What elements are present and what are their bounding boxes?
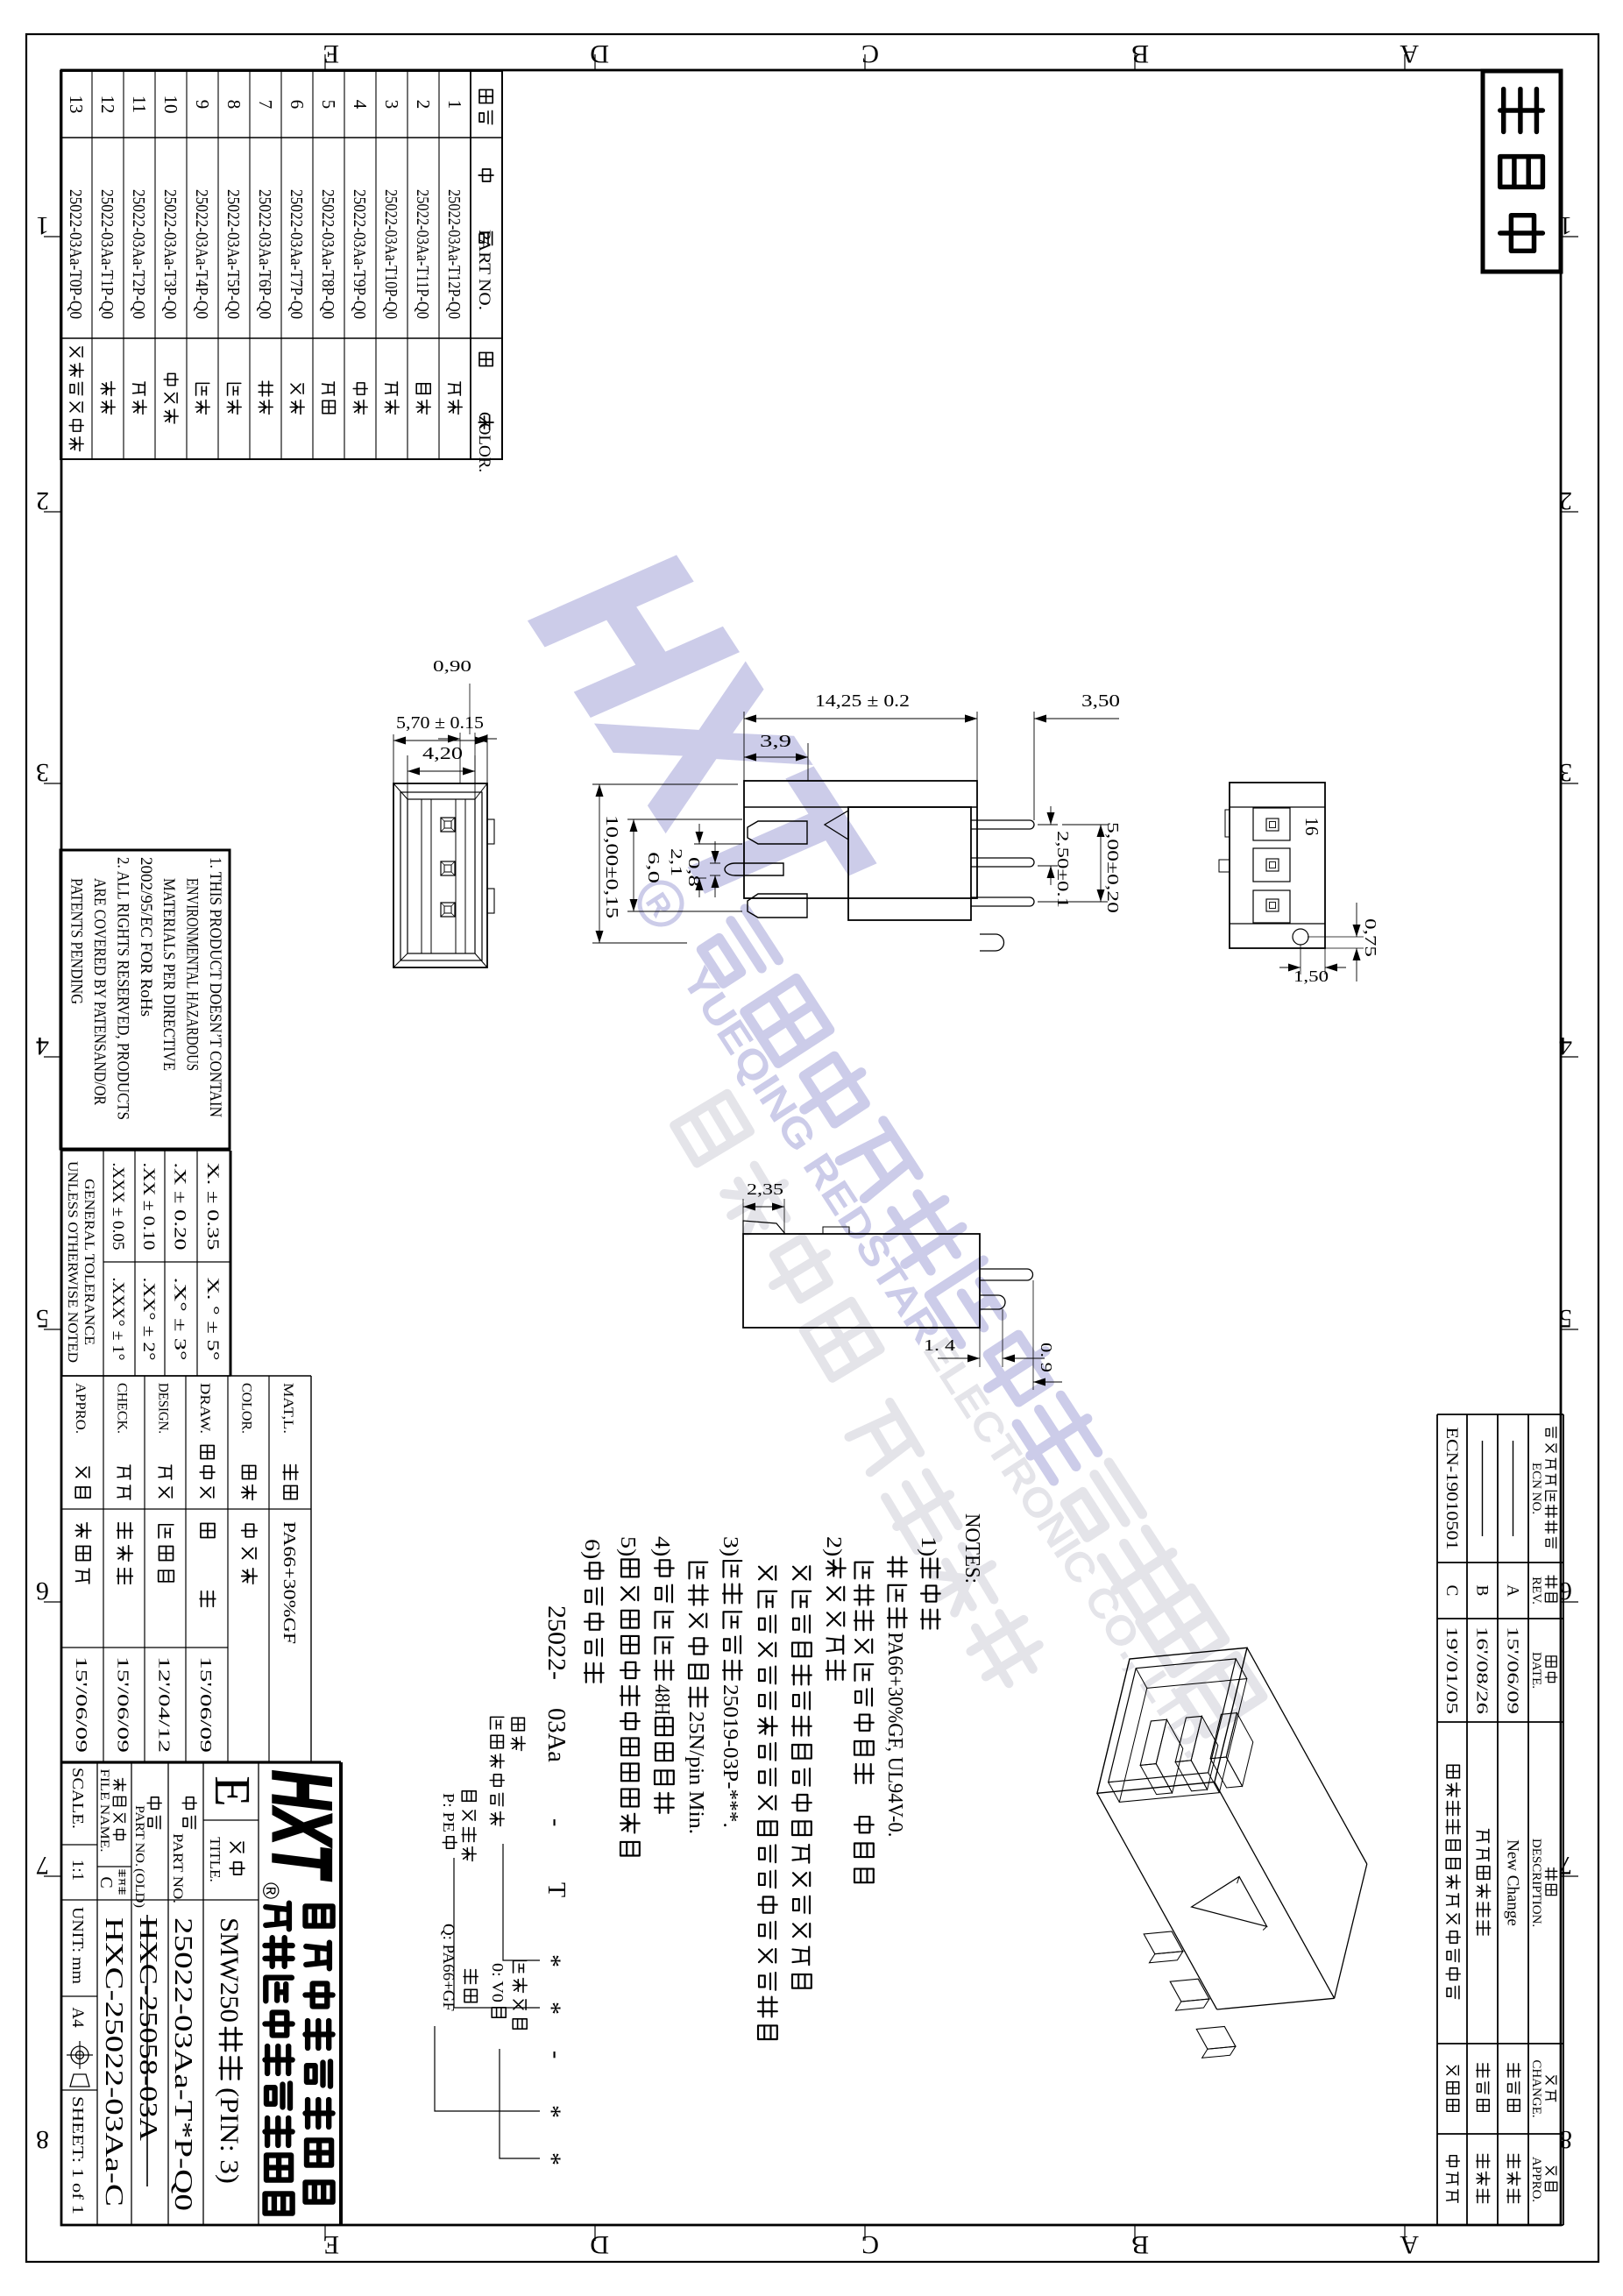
svg-text:NOTES:: NOTES: [960, 1513, 983, 1584]
svg-text:0,90: 0,90 [433, 657, 471, 675]
svg-text:1,50: 1,50 [1293, 967, 1329, 985]
svg-text:.X° ± 3°: .X° ± 3° [171, 1278, 189, 1361]
svg-text:25022-03Aa-T10P-Q0: 25022-03Aa-T10P-Q0 [381, 189, 400, 319]
svg-text:1. THIS PRODUCT DOESN’T CONTAI: 1. THIS PRODUCT DOESN’T CONTAIN [206, 857, 224, 1117]
svg-text:1:1: 1:1 [68, 1860, 87, 1881]
svg-text:ENVIRONMENTAL HAZARDOUS: ENVIRONMENTAL HAZARDOUS [183, 878, 202, 1071]
svg-text:PART NO.: PART NO. [170, 1833, 185, 1903]
svg-text:HXC-25022-03Aa-C: HXC-25022-03Aa-C [100, 1917, 127, 2207]
svg-text:8: 8 [36, 2125, 49, 2154]
svg-text:D: D [590, 39, 609, 68]
svg-text:X. ° ± 5°: X. ° ± 5° [203, 1278, 222, 1361]
svg-text:2: 2 [36, 486, 49, 515]
svg-text:MATERIALS PER DIRECTIVE: MATERIALS PER DIRECTIVE [159, 878, 178, 1071]
svg-text:12: 12 [97, 96, 118, 114]
svg-text:DESCRIPTION.: DESCRIPTION. [1529, 1839, 1543, 1927]
svg-text:19'/01/05: 19'/01/05 [1443, 1626, 1461, 1714]
svg-text:2): 2) [822, 1536, 845, 1556]
svg-text:25022-03Aa-T12P-Q0: 25022-03Aa-T12P-Q0 [444, 189, 464, 319]
svg-text:REV.: REV. [1529, 1577, 1543, 1605]
svg-text:3: 3 [381, 100, 402, 110]
svg-text:5: 5 [1559, 1304, 1572, 1333]
svg-text:11: 11 [129, 96, 150, 113]
svg-text:*: * [537, 2152, 566, 2165]
svg-text:13: 13 [66, 96, 87, 114]
svg-text:UNLESS OTHERWISE NOTED: UNLESS OTHERWISE NOTED [65, 1161, 80, 1363]
svg-text:E: E [323, 2230, 339, 2259]
svg-text:6): 6) [580, 1539, 603, 1559]
svg-text:15'/06/09: 15'/06/09 [73, 1656, 90, 1753]
svg-text:0. 9: 0. 9 [1038, 1343, 1055, 1372]
svg-text:(PIN: 3): (PIN: 3) [215, 2087, 244, 2184]
svg-text:ECN NO.: ECN NO. [1529, 1463, 1543, 1514]
svg-text:T: T [542, 1882, 570, 1897]
svg-text:2. ALL RIGHTS RESERVED, PRODUC: 2. ALL RIGHTS RESERVED, PRODUCTS [113, 857, 131, 1120]
svg-text:6: 6 [287, 100, 308, 110]
svg-text:X. ± 0.35: X. ± 0.35 [203, 1163, 222, 1251]
svg-text:1: 1 [36, 211, 49, 240]
svg-text:B: B [1131, 2230, 1149, 2259]
svg-text:PART NO.: PART NO. [132, 1805, 146, 1867]
svg-text:8: 8 [1559, 2125, 1572, 2154]
svg-text:25019-03P-***.: 25019-03P-***. [719, 1684, 741, 1828]
svg-text:25022-03Aa-T6P-Q0: 25022-03Aa-T6P-Q0 [255, 189, 274, 319]
svg-text:*: * [537, 2002, 566, 2015]
svg-text:P: PE: P: PE [440, 1793, 457, 1832]
svg-text:5,00±0,20: 5,00±0,20 [1104, 822, 1122, 913]
svg-text:APPRO.: APPRO. [1529, 2157, 1543, 2202]
svg-text:10,00±0,15: 10,00±0,15 [602, 815, 621, 918]
svg-text:2002/95/EC FOR RoHs: 2002/95/EC FOR RoHs [137, 857, 155, 1017]
svg-text:4: 4 [36, 1031, 49, 1060]
svg-text:12'/04/12: 12'/04/12 [156, 1656, 174, 1753]
svg-text:0,75: 0,75 [1362, 918, 1379, 957]
svg-text:4,20: 4,20 [422, 744, 463, 763]
svg-text:B: B [1131, 39, 1149, 68]
svg-text:-: - [542, 1818, 570, 1826]
svg-text:E: E [204, 1775, 261, 1806]
svg-text:C: C [861, 39, 879, 68]
svg-text:C: C [96, 1876, 116, 1888]
svg-text:*: * [537, 1954, 566, 1967]
svg-text:03Aa: 03Aa [542, 1708, 570, 1763]
svg-text:2: 2 [1559, 486, 1572, 515]
svg-text:15'/06/09: 15'/06/09 [115, 1656, 132, 1753]
svg-text:2,1: 2,1 [668, 848, 685, 876]
svg-text:C: C [1442, 1585, 1461, 1597]
svg-text:3,50: 3,50 [1081, 691, 1120, 711]
svg-text:.XX ± 0.10: .XX ± 0.10 [139, 1163, 158, 1251]
svg-text:A: A [1400, 2230, 1419, 2259]
svg-text:2,50±0.1: 2,50±0.1 [1054, 831, 1072, 908]
svg-text:15'/06/09: 15'/06/09 [197, 1656, 215, 1753]
svg-text:25022-03Aa-T1P-Q0: 25022-03Aa-T1P-Q0 [97, 189, 117, 319]
svg-text:10: 10 [160, 96, 181, 114]
svg-text:D: D [590, 2230, 609, 2259]
svg-text:ECN-19010501: ECN-19010501 [1442, 1428, 1461, 1550]
svg-text:HXT: HXT [255, 1770, 349, 1881]
svg-text:.XXX ± 0.05: .XXX ± 0.05 [109, 1163, 127, 1251]
svg-text:PA66+30%GF: PA66+30%GF [280, 1521, 299, 1644]
svg-text:48H: 48H [650, 1684, 673, 1715]
svg-text:16: 16 [1301, 818, 1322, 836]
svg-text:.XXX° ± 1°: .XXX° ± 1° [109, 1278, 127, 1361]
svg-text:E: E [323, 39, 339, 68]
svg-text:DATE.: DATE. [1529, 1652, 1543, 1689]
svg-text:25022-03Aa-T5P-Q0: 25022-03Aa-T5P-Q0 [223, 189, 243, 319]
svg-text:25022-03Aa-T0P-Q0: 25022-03Aa-T0P-Q0 [66, 189, 85, 319]
svg-text:-: - [542, 2051, 570, 2059]
svg-text:25022-03Aa-T*P-Q0: 25022-03Aa-T*P-Q0 [169, 1917, 196, 2211]
svg-text:.XX° ± 2°: .XX° ± 2° [139, 1278, 158, 1361]
svg-text:25022-03Aa-T7P-Q0: 25022-03Aa-T7P-Q0 [287, 189, 306, 319]
svg-text:A4: A4 [68, 2007, 87, 2028]
svg-text:5,70 ± 0.15: 5,70 ± 0.15 [396, 713, 484, 733]
svg-text:SMW250: SMW250 [215, 1917, 244, 2023]
svg-text:7: 7 [36, 1851, 49, 1880]
svg-text:3,9: 3,9 [760, 732, 791, 751]
svg-text:A: A [1504, 1584, 1522, 1597]
svg-text:DRAW.: DRAW. [197, 1383, 212, 1434]
svg-text:Q: PA66+GF: Q: PA66+GF [440, 1924, 457, 2011]
svg-text:5: 5 [36, 1304, 49, 1333]
svg-text:16'/08/26: 16'/08/26 [1474, 1626, 1492, 1714]
svg-text:8: 8 [223, 100, 245, 110]
svg-text:DESIGN.: DESIGN. [156, 1383, 171, 1434]
svg-text:SCALE.: SCALE. [69, 1768, 87, 1829]
svg-text:2,35: 2,35 [747, 1180, 783, 1198]
svg-text:FILE NAME.: FILE NAME. [97, 1769, 111, 1853]
svg-text:5: 5 [318, 100, 339, 110]
svg-text:25022-03Aa-T3P-Q0: 25022-03Aa-T3P-Q0 [160, 189, 180, 319]
svg-text:C: C [861, 2230, 879, 2259]
svg-text:ARE COVERED BY PATENSAND/OR: ARE COVERED BY PATENSAND/OR [90, 878, 109, 1105]
svg-text:MAT,L.: MAT,L. [280, 1383, 295, 1434]
svg-text:25022-: 25022- [542, 1605, 570, 1680]
svg-text:6: 6 [1559, 1577, 1572, 1605]
svg-text:3): 3) [719, 1536, 741, 1556]
svg-text:CHECK.: CHECK. [115, 1383, 130, 1434]
svg-text:25022-03Aa-T9P-Q0: 25022-03Aa-T9P-Q0 [350, 189, 369, 319]
svg-text:B: B [1473, 1585, 1492, 1597]
svg-text:SHEET: 1 of 1: SHEET: 1 of 1 [69, 2096, 87, 2215]
svg-text:COLOR.: COLOR. [475, 412, 493, 472]
svg-text:*: * [537, 2105, 566, 2118]
svg-text:15'/06/09: 15'/06/09 [1505, 1626, 1522, 1714]
svg-text:PATENTS PENDING: PATENTS PENDING [67, 878, 86, 1004]
svg-text:New Change: New Change [1504, 1839, 1522, 1926]
svg-text:25022-03Aa-T4P-Q0: 25022-03Aa-T4P-Q0 [192, 189, 211, 319]
svg-text:2: 2 [413, 100, 434, 110]
svg-text:7: 7 [255, 100, 276, 110]
svg-text:25N/pin Min.: 25N/pin Min. [684, 1711, 707, 1834]
svg-text:25022-03Aa-T11P-Q0: 25022-03Aa-T11P-Q0 [413, 189, 432, 319]
svg-text:4: 4 [1559, 1031, 1572, 1060]
svg-text:CHANGE.: CHANGE. [1529, 2059, 1543, 2117]
svg-text:.X ± 0.20: .X ± 0.20 [171, 1163, 189, 1251]
svg-text:COLOR.: COLOR. [239, 1383, 254, 1434]
svg-text:1: 1 [444, 100, 465, 110]
svg-text:7: 7 [1559, 1851, 1572, 1880]
svg-text:0: V0: 0: V0 [489, 1963, 507, 2002]
svg-text:9: 9 [192, 100, 213, 110]
svg-text:25022-03Aa-T8P-Q0: 25022-03Aa-T8P-Q0 [318, 189, 337, 319]
svg-text:1. 4: 1. 4 [924, 1336, 955, 1354]
svg-text:3: 3 [36, 758, 49, 787]
svg-text:PA66+30%GF, UL94V-0.: PA66+30%GF, UL94V-0. [883, 1632, 906, 1837]
svg-text:14,25 ± 0.2: 14,25 ± 0.2 [815, 691, 910, 711]
svg-text:(OLD): (OLD) [132, 1868, 146, 1908]
svg-text:3: 3 [1559, 758, 1572, 787]
svg-text:1): 1) [917, 1536, 939, 1556]
svg-text:TITLE.: TITLE. [207, 1837, 223, 1881]
svg-text:4: 4 [350, 100, 371, 110]
svg-text:6: 6 [36, 1577, 49, 1605]
svg-text:5): 5) [616, 1536, 639, 1556]
svg-text:®: ® [258, 1882, 284, 1899]
svg-text:PART NO.: PART NO. [475, 230, 493, 310]
svg-text:25022-03Aa-T2P-Q0: 25022-03Aa-T2P-Q0 [129, 189, 148, 319]
svg-text:GENERAL TOLERANCE: GENERAL TOLERANCE [82, 1179, 96, 1345]
svg-text:4): 4) [650, 1536, 673, 1556]
svg-text:UNIT: mm: UNIT: mm [69, 1907, 87, 1984]
svg-text:A: A [1400, 39, 1419, 68]
svg-text:6,0: 6,0 [645, 852, 663, 883]
svg-text:APPRO.: APPRO. [73, 1383, 88, 1434]
